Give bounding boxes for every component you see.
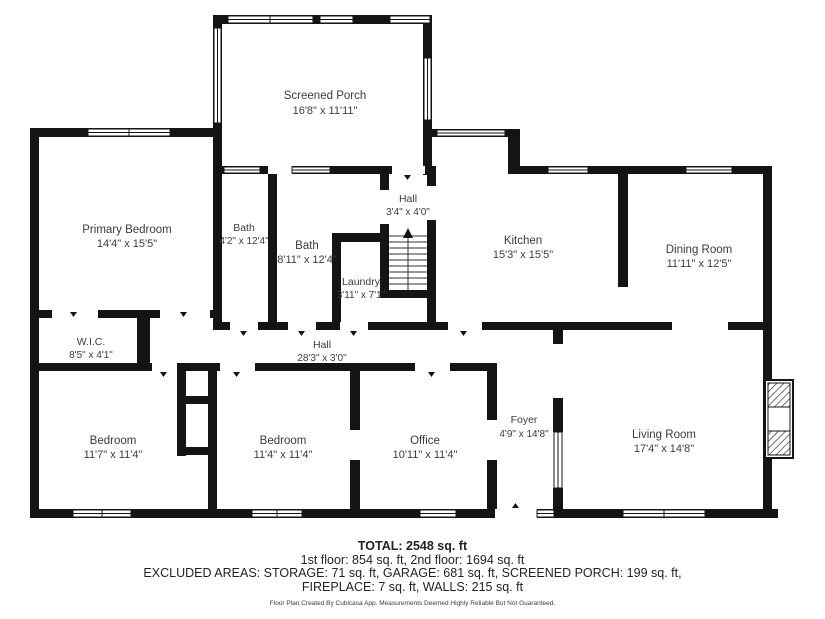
room-label-hall-main: Hall [313, 339, 331, 351]
room-dims-office: 10'11" x 11'4" [393, 449, 458, 461]
room-label-bedroom-1: Bedroom [90, 435, 137, 447]
room-label-bath-2: Bath [295, 240, 319, 252]
room-label-laundry: Laundry [342, 276, 381, 288]
room-dims-laundry: 3'11" x 7'1" [337, 290, 386, 301]
room-label-bedroom-2: Bedroom [260, 435, 307, 447]
room-dims-primary-bedroom: 14'4" x 15'5" [97, 238, 157, 250]
room-label-bath-1: Bath [233, 222, 255, 234]
room-dims-dining-room: 11'11" x 12'5" [667, 258, 732, 270]
room-labels: Screened Porch 16'8" x 11'11" Primary Be… [69, 90, 732, 461]
fireplace-icon [765, 380, 793, 458]
room-label-foyer: Foyer [511, 414, 538, 426]
total-area-text: TOTAL: 2548 sq. ft [0, 540, 825, 554]
room-dims-screened-porch: 16'8" x 11'11" [293, 105, 358, 117]
room-label-wic: W.I.C. [77, 336, 106, 348]
summary-footer: TOTAL: 2548 sq. ft 1st floor: 854 sq. ft… [0, 540, 825, 607]
room-dims-bath-1: 4'2" x 12'4" [219, 236, 269, 247]
floor-areas-text: 1st floor: 854 sq. ft, 2nd floor: 1694 s… [0, 554, 825, 568]
floor-plan-svg: Screened Porch 16'8" x 11'11" Primary Be… [0, 0, 825, 535]
room-dims-kitchen: 15'3" x 15'5" [493, 249, 553, 261]
room-label-living-room: Living Room [632, 429, 696, 441]
room-label-screened-porch: Screened Porch [284, 90, 366, 102]
creator-credit-text: Floor Plan Created By Cubicasa App. Meas… [0, 600, 825, 607]
room-dims-hall-upper: 3'4" x 4'0" [386, 207, 430, 218]
floor-plan-page: Screened Porch 16'8" x 11'11" Primary Be… [0, 0, 825, 619]
room-label-primary-bedroom: Primary Bedroom [82, 224, 171, 236]
room-dims-bedroom-1: 11'7" x 11'4" [84, 449, 143, 461]
room-label-kitchen: Kitchen [504, 235, 542, 247]
staircase [389, 228, 427, 290]
room-label-dining-room: Dining Room [666, 244, 732, 256]
excluded-areas-text-2: FIREPLACE: 7 sq. ft, WALLS: 215 sq. ft [0, 581, 825, 595]
room-label-office: Office [410, 435, 440, 447]
room-dims-living-room: 17'4" x 14'8" [634, 443, 694, 455]
room-label-hall-upper: Hall [399, 193, 417, 205]
room-dims-bath-2: 8'11" x 12'4" [277, 254, 337, 266]
excluded-areas-text-1: EXCLUDED AREAS: STORAGE: 71 sq. ft, GARA… [0, 567, 825, 581]
room-dims-wic: 8'5" x 4'1" [69, 350, 113, 361]
room-dims-bedroom-2: 11'4" x 11'4" [254, 449, 313, 461]
window-icon [228, 16, 430, 23]
room-dims-hall-main: 28'3" x 3'0" [297, 353, 347, 364]
room-dims-foyer: 4'9" x 14'8" [499, 429, 549, 440]
stairs-up-arrow-icon [403, 228, 413, 238]
